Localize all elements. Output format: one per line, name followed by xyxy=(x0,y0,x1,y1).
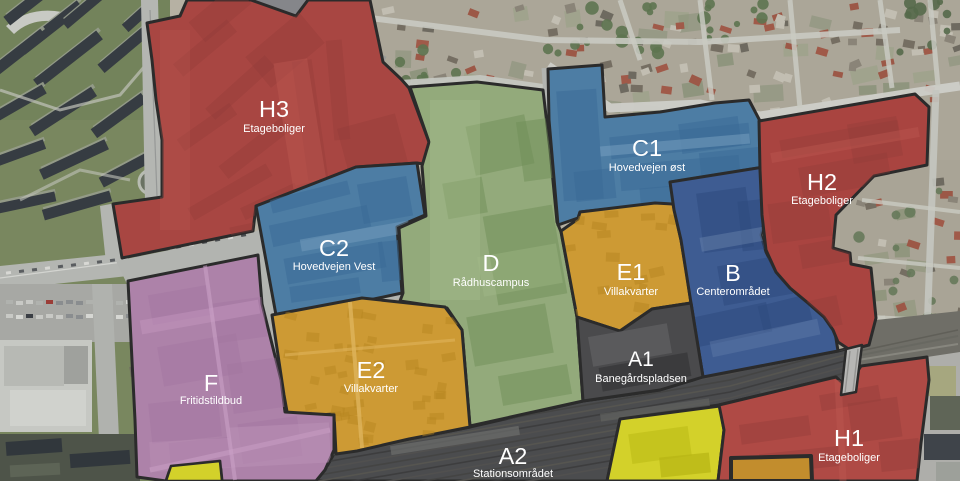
svg-text:Villakvarter: Villakvarter xyxy=(604,286,659,298)
svg-text:C2: C2 xyxy=(319,235,349,261)
svg-text:D: D xyxy=(483,250,500,276)
svg-text:B: B xyxy=(725,260,741,286)
svg-text:A2: A2 xyxy=(499,443,528,469)
svg-text:Banegårdspladsen: Banegårdspladsen xyxy=(595,373,687,385)
svg-text:Villakvarter: Villakvarter xyxy=(344,383,399,395)
svg-text:C1: C1 xyxy=(632,135,662,161)
svg-text:H2: H2 xyxy=(807,169,837,195)
svg-text:F: F xyxy=(204,370,218,396)
svg-text:H1: H1 xyxy=(834,425,864,451)
svg-text:Hovedvejen øst: Hovedvejen øst xyxy=(609,162,685,174)
svg-text:A1: A1 xyxy=(628,348,654,371)
svg-text:Fritidstildbud: Fritidstildbud xyxy=(180,395,242,407)
svg-text:Rådhuscampus: Rådhuscampus xyxy=(453,277,530,289)
svg-text:H3: H3 xyxy=(259,96,289,122)
svg-text:Stationsområdet: Stationsområdet xyxy=(473,468,553,480)
svg-text:E2: E2 xyxy=(357,357,386,383)
svg-text:Centerområdet: Centerområdet xyxy=(696,286,769,298)
svg-text:Etageboliger: Etageboliger xyxy=(818,452,880,464)
svg-text:Etageboliger: Etageboliger xyxy=(243,123,305,135)
svg-text:Etageboliger: Etageboliger xyxy=(791,195,853,207)
svg-text:Hovedvejen Vest: Hovedvejen Vest xyxy=(293,261,376,273)
svg-text:E1: E1 xyxy=(617,259,646,285)
